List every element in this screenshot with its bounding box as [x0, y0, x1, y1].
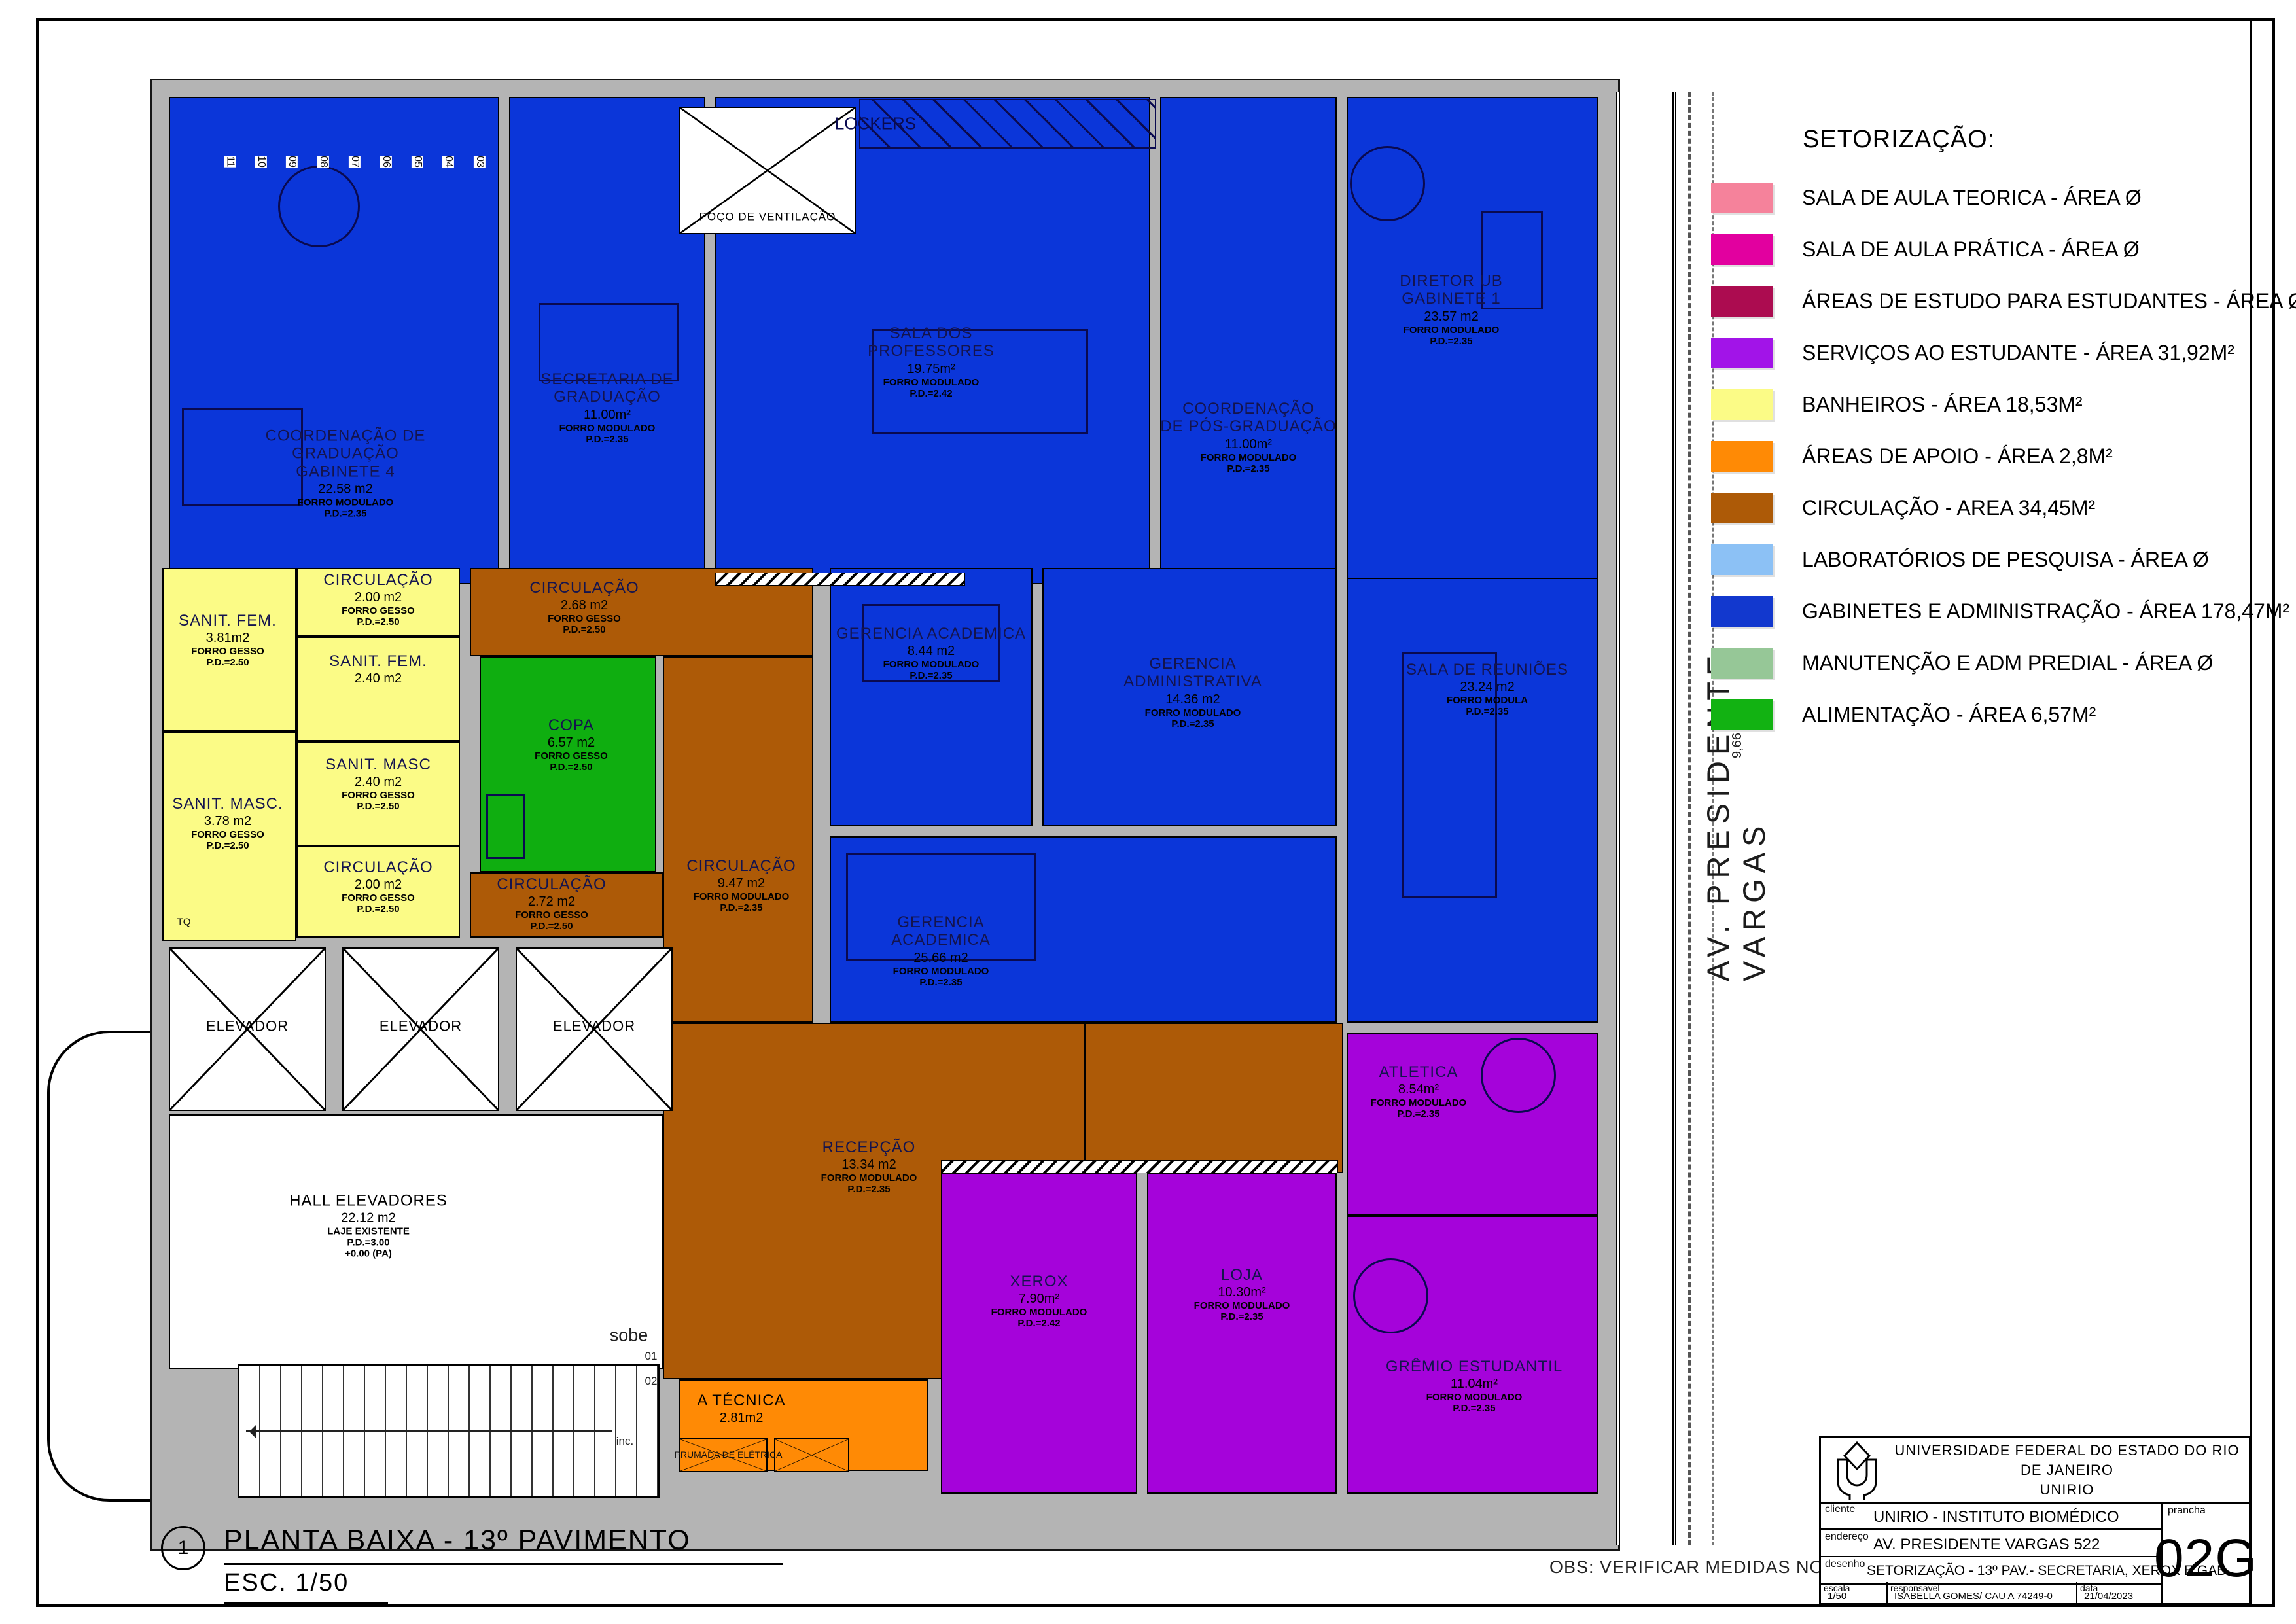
room-meta: P.D.=2.50 [535, 762, 608, 773]
room-name: CIRCULAÇÃO [323, 858, 433, 876]
legend-swatch [1711, 544, 1773, 575]
room-area: 22.12 m2 [289, 1211, 448, 1226]
room-name: PROFESSORES [868, 343, 995, 361]
room-label-elevador-2: ELEVADOR [380, 1017, 462, 1034]
room-atletica [1347, 1033, 1598, 1216]
room-meta: +0.00 (PA) [289, 1248, 448, 1260]
field-value: 21/04/2023 [2084, 1591, 2133, 1602]
room-label-sanitario-masculino-240: SANIT. MASC2.40 m2FORRO GESSOP.D.=2.50 [325, 756, 431, 812]
room-meta: P.D.=2.42 [991, 1318, 1087, 1329]
room-meta: FORRO GESSO [323, 892, 433, 904]
room-meta: FORRO MODULADO [1194, 1300, 1290, 1311]
room-label-a-tecnica: A TÉCNICA2.81m2 [697, 1392, 785, 1426]
legend-item-10: ALIMENTAÇÃO - ÁREA 6,57M² [1711, 689, 2271, 741]
room-area: 2.81m2 [697, 1411, 785, 1426]
legend-swatch [1711, 596, 1773, 627]
room-name: ELEVADOR [206, 1017, 289, 1034]
room-name: SANIT. FEM. [329, 652, 427, 670]
room-name: GABINETE 4 [266, 463, 426, 480]
room-name: GRADUAÇÃO [540, 389, 673, 406]
room-area: 11.00m² [1160, 437, 1336, 452]
room-area: 6.57 m2 [535, 735, 608, 750]
room-meta: FORRO MODULADO [686, 891, 796, 902]
room-label-sala-dos-professores: SALA DOSPROFESSORES19.75m²FORRO MODULADO… [868, 325, 995, 399]
room-label-circulacao-sanitarios-inferior: CIRCULAÇÃO2.00 m2FORRO GESSOP.D.=2.50 [323, 858, 433, 915]
room-name: SANIT. FEM. [179, 612, 277, 629]
title-block: UNIVERSIDADE FEDERAL DO ESTADO DO RIO DE… [1819, 1436, 2251, 1605]
room-area: 10.30m² [1194, 1285, 1290, 1300]
legend-swatch [1711, 389, 1773, 420]
room-area: 25.66 m2 [891, 951, 991, 966]
room-meta: P.D.=2.42 [868, 388, 995, 399]
unirio-logo-icon [1829, 1440, 1885, 1500]
room-meta: FORRO GESSO [172, 829, 283, 840]
room-meta: P.D.=2.35 [891, 977, 991, 988]
cross-icon [775, 1439, 848, 1471]
field-prancha: prancha 02G [2161, 1502, 2249, 1603]
stair-number: 04 [442, 156, 454, 168]
field-escala: escala 1/50 [1821, 1582, 1888, 1603]
room-area: 2.00 m2 [323, 590, 433, 605]
room-prumada-eletrica-2 [774, 1438, 849, 1472]
lockers-label: LOCKERS [835, 114, 916, 134]
room-label-elevador-3: ELEVADOR [553, 1017, 635, 1034]
room-area: 14.36 m2 [1123, 692, 1262, 707]
legend-item-2: ÁREAS DE ESTUDO PARA ESTUDANTES - ÁREA Ø [1711, 275, 2271, 327]
legend-item-6: CIRCULAÇÃO - AREA 34,45M² [1711, 482, 2271, 534]
furniture-mesa-secretaria [539, 303, 679, 381]
room-area: 23.57 m2 [1400, 309, 1503, 325]
legend-swatch [1711, 183, 1773, 213]
room-meta: LAJE EXISTENTE [289, 1226, 448, 1237]
field-cliente: cliente UNIRIO - INSTITUTO BIOMÉDICO [1821, 1502, 2163, 1530]
room-meta: P.D.=2.35 [686, 902, 796, 913]
room-label-gerencia-academica-2566: GERENCIAACADEMICA25.66 m2FORRO MODULADOP… [891, 913, 991, 988]
room-meta: P.D.=2.50 [323, 616, 433, 627]
legend-item-label: SALA DE AULA TEORICA - ÁREA Ø [1802, 186, 2142, 210]
legend-item-label: ÁREAS DE ESTUDO PARA ESTUDANTES - ÁREA Ø [1802, 289, 2296, 313]
street-centerline [1688, 92, 1691, 1545]
floor-plan: 111009080706050403 desce COORDENAÇÃO DEG… [150, 79, 1620, 1551]
room-name: COORDENAÇÃO DE [266, 427, 426, 444]
hall-curved-wall [47, 1031, 160, 1502]
field-data: data 21/04/2023 [2077, 1582, 2163, 1603]
field-value: AV. PRESIDENTE VARGAS 522 [1873, 1536, 2100, 1554]
legend-item-label: LABORATÓRIOS DE PESQUISA - ÁREA Ø [1802, 548, 2209, 572]
title-block-bottom-row: escala 1/50 responsavel ISABELLA GOMES/ … [1821, 1582, 2163, 1603]
room-name: SANIT. MASC [325, 756, 431, 773]
room-meta: FORRO MODULADO [821, 1173, 917, 1184]
room-name: POÇO DE VENTILAÇÃO [699, 210, 836, 222]
room-label-sanitario-feminino-381: SANIT. FEM.3.81m2FORRO GESSOP.D.=2.50 [179, 612, 277, 668]
room-meta: FORRO GESSO [179, 646, 277, 657]
room-label-diretor-ub-gabinete-1: DIRETOR UBGABINETE 123.57 m2FORRO MODULA… [1400, 272, 1503, 347]
room-meta: FORRO MODULADO [991, 1307, 1087, 1318]
room-name: ELEVADOR [380, 1017, 462, 1034]
room-meta: FORRO MODULADO [540, 423, 673, 434]
room-meta: FORRO GESSO [529, 613, 639, 624]
room-name: RECEPÇÃO [821, 1139, 917, 1156]
field-value: ISABELLA GOMES/ CAU A 74249-0 [1894, 1591, 2053, 1602]
hatched-wall [941, 1160, 1338, 1173]
title-block-rows: cliente UNIRIO - INSTITUTO BIOMÉDICO end… [1821, 1502, 2163, 1603]
prumada-label: PRUMADA DE ELÉTRICA [675, 1449, 783, 1460]
room-name: COPA [535, 716, 608, 734]
drawing-title: PLANTA BAIXA - 13º PAVIMENTO [224, 1525, 783, 1565]
room-name: CIRCULAÇÃO [686, 857, 796, 875]
room-label-circulacao-268: CIRCULAÇÃO2.68 m2FORRO GESSOP.D.=2.50 [529, 579, 639, 635]
legend-item-1: SALA DE AULA PRÁTICA - ÁREA Ø [1711, 224, 2271, 275]
legend-item-0: SALA DE AULA TEORICA - ÁREA Ø [1711, 172, 2271, 224]
room-meta: P.D.=2.50 [323, 904, 433, 915]
room-meta: P.D.=2.35 [836, 670, 1026, 681]
stair-center-line [246, 1430, 612, 1432]
legend-item-9: MANUTENÇÃO E ADM PREDIAL - ÁREA Ø [1711, 637, 2271, 689]
room-label-coordenacao-de-pos-graduacao: COORDENAÇÃODE PÓS-GRADUAÇÃO11.00m²FORRO … [1160, 400, 1336, 474]
room-meta: FORRO GESSO [497, 909, 606, 921]
hatched-wall [715, 573, 965, 586]
room-meta: FORRO MODULADO [1386, 1392, 1563, 1403]
room-label-hall-elevadores: HALL ELEVADORES22.12 m2LAJE EXISTENTEP.D… [289, 1192, 448, 1259]
stair-number: 07 [349, 156, 361, 168]
title-block-header: UNIVERSIDADE FEDERAL DO ESTADO DO RIO DE… [1821, 1438, 2249, 1504]
room-label-sanitario-feminino-240: SANIT. FEM.2.40 m2 [329, 652, 427, 686]
room-meta: FORRO MODULADO [1123, 707, 1262, 718]
room-name: A TÉCNICA [697, 1392, 785, 1409]
stair-number: 06 [380, 156, 392, 168]
room-meta: FORRO MODULADO [868, 377, 995, 388]
room-meta: FORRO MODULADO [266, 497, 426, 508]
room-area: 9.47 m2 [686, 876, 796, 891]
room-meta: P.D.=2.35 [1371, 1108, 1467, 1120]
stair-number: 08 [317, 156, 329, 168]
room-label-secretaria-de-graduacao: SECRETARIA DEGRADUAÇÃO11.00m²FORRO MODUL… [540, 370, 673, 445]
sheet-number: 02G [2154, 1528, 2257, 1589]
field-desenho: desenho SETORIZAÇÃO - 13º PAV.- SECRETAR… [1821, 1557, 2163, 1585]
room-meta: P.D.=2.35 [1160, 463, 1336, 474]
degrau-02: 02 [645, 1375, 658, 1388]
drawing-scale: ESC. 1/50 [224, 1569, 388, 1604]
furniture-mesa-redonda-diretor [1350, 146, 1425, 221]
legend-item-label: MANUTENÇÃO E ADM PREDIAL - ÁREA Ø [1802, 651, 2213, 675]
legend-swatch [1711, 286, 1773, 317]
room-name: CIRCULAÇÃO [497, 875, 606, 893]
room-area: 8.54m² [1371, 1082, 1467, 1097]
room-meta: FORRO MODULA [1406, 695, 1568, 706]
legend-swatch [1711, 493, 1773, 523]
furniture-mesa-redonda-gremio [1353, 1258, 1428, 1333]
field-value: UNIRIO - INSTITUTO BIOMÉDICO [1873, 1508, 2119, 1527]
room-name: ATLETICA [1371, 1063, 1467, 1081]
room-area: 2.00 m2 [323, 877, 433, 892]
room-area: 11.04m² [1386, 1377, 1563, 1392]
room-label-gremio-estudantil: GRÊMIO ESTUDANTIL11.04m²FORRO MODULADOP.… [1386, 1358, 1563, 1414]
legend-swatch [1711, 699, 1773, 730]
field-endereco: endereço AV. PRESIDENTE VARGAS 522 [1821, 1530, 2163, 1557]
room-meta: P.D.=2.35 [1400, 336, 1503, 347]
room-label-gerencia-administrativa: GERENCIAADMINISTRATIVA14.36 m2FORRO MODU… [1123, 655, 1262, 730]
room-meta: P.D.=2.35 [821, 1184, 917, 1195]
room-meta: P.D.=2.50 [172, 840, 283, 851]
tq-label: TQ [177, 917, 191, 928]
room-meta: FORRO MODULADO [1160, 452, 1336, 463]
room-area: 3.81m2 [179, 631, 277, 646]
room-name: CIRCULAÇÃO [323, 571, 433, 589]
legend-item-8: GABINETES E ADMINISTRAÇÃO - ÁREA 178,47M… [1711, 586, 2271, 637]
room-meta: FORRO GESSO [325, 790, 431, 801]
legend-title: SETORIZAÇÃO: [1803, 126, 2271, 154]
view-number-bubble: 1 [161, 1526, 205, 1570]
legend-item-label: SALA DE AULA PRÁTICA - ÁREA Ø [1802, 238, 2140, 262]
legend-item-label: GABINETES E ADMINISTRAÇÃO - ÁREA 178,47M… [1802, 599, 2289, 624]
room-area: 22.58 m2 [266, 482, 426, 497]
room-label-sala-de-reunioes: SALA DE REUNIÕES23.24 m2FORRO MODULAP.D.… [1406, 661, 1568, 717]
room-label-circulacao-sanitarios-superior: CIRCULAÇÃO2.00 m2FORRO GESSOP.D.=2.50 [323, 571, 433, 627]
stair-number: 05 [411, 156, 423, 168]
room-area: 11.00m² [540, 408, 673, 423]
room-meta: P.D.=2.50 [529, 624, 639, 635]
room-area: 7.90m² [991, 1292, 1087, 1307]
stair-number: 03 [474, 156, 486, 168]
room-area: 2.72 m2 [497, 894, 606, 909]
room-meta: P.D.=2.35 [1194, 1311, 1290, 1322]
room-label-sanitario-masculino-378: SANIT. MASC.3.78 m2FORRO GESSOP.D.=2.50 [172, 795, 283, 851]
legend-swatch [1711, 441, 1773, 472]
room-label-xerox: XEROX7.90m²FORRO MODULADOP.D.=2.42 [991, 1273, 1087, 1329]
drawing-sheet: 111009080706050403 desce COORDENAÇÃO DEG… [0, 0, 2296, 1624]
room-name: ELEVADOR [553, 1017, 635, 1034]
room-meta: P.D.=2.35 [266, 508, 426, 519]
room-name: GERENCIA ACADEMICA [836, 625, 1026, 643]
legend-item-4: BANHEIROS - ÁREA 18,53M² [1711, 379, 2271, 431]
furniture-mesa-redonda-atletica [1481, 1038, 1556, 1113]
furniture-mesa-redonda-gabinete-4 [278, 166, 360, 247]
room-meta: FORRO MODULADO [891, 966, 991, 977]
stair-step-numbers: 111009080706050403 [224, 156, 486, 168]
room-meta: FORRO MODULADO [836, 659, 1026, 670]
legend-swatch [1711, 648, 1773, 679]
legend-item-3: SERVIÇOS AO ESTUDANTE - ÁREA 31,92M² [1711, 327, 2271, 379]
room-meta: P.D.=2.35 [1406, 706, 1568, 717]
room-meta: P.D.=2.50 [497, 921, 606, 932]
room-name: SALA DOS [868, 325, 995, 342]
balcony-strip [1616, 92, 1676, 1545]
room-area: 2.40 m2 [329, 671, 427, 686]
room-meta: P.D.=2.50 [325, 801, 431, 812]
room-area: 2.68 m2 [529, 598, 639, 613]
room-circulacao-947 [663, 656, 813, 1023]
room-label-atletica: ATLETICA8.54m²FORRO MODULADOP.D.=2.35 [1371, 1063, 1467, 1120]
room-circulacao-lojas [1085, 1023, 1343, 1173]
room-name: COORDENAÇÃO [1160, 400, 1336, 417]
inc-label: inc. [616, 1435, 633, 1448]
room-meta: P.D.=3.00 [289, 1237, 448, 1248]
legend-swatch [1711, 338, 1773, 368]
room-name: SANIT. MASC. [172, 795, 283, 813]
room-name: XEROX [991, 1273, 1087, 1290]
room-area: 3.78 m2 [172, 814, 283, 829]
legend-item-label: CIRCULAÇÃO - AREA 34,45M² [1802, 496, 2095, 520]
room-meta: P.D.=2.50 [179, 657, 277, 668]
legend-item-5: ÁREAS DE APOIO - ÁREA 2,8M² [1711, 431, 2271, 482]
room-label-recepcao: RECEPÇÃO13.34 m2FORRO MODULADOP.D.=2.35 [821, 1139, 917, 1195]
room-name: GRÊMIO ESTUDANTIL [1386, 1358, 1563, 1375]
field-value: 1/50 [1828, 1591, 1846, 1602]
legend-swatch [1711, 234, 1773, 265]
room-name: GERENCIA [1123, 655, 1262, 673]
room-meta: FORRO MODULADO [1400, 325, 1503, 336]
room-coordenacao-de-pos-graduacao [1160, 97, 1337, 584]
room-meta: P.D.=2.35 [540, 434, 673, 445]
room-label-coordenacao-graduacao-gabinete-4: COORDENAÇÃO DEGRADUAÇÃOGABINETE 422.58 m… [266, 427, 426, 519]
room-label-gerencia-academica-844: GERENCIA ACADEMICA8.44 m2FORRO MODULADOP… [836, 625, 1026, 681]
room-meta: P.D.=2.35 [1386, 1403, 1563, 1414]
room-name: DE PÓS-GRADUAÇÃO [1160, 418, 1336, 436]
room-name: ADMINISTRATIVA [1123, 673, 1262, 691]
sobe-label: sobe [610, 1326, 648, 1346]
room-name: GABINETE 1 [1400, 291, 1503, 308]
room-name: SALA DE REUNIÕES [1406, 661, 1568, 679]
legend: SETORIZAÇÃO: SALA DE AULA TEORICA - ÁREA… [1711, 126, 2271, 741]
university-line1: UNIVERSIDADE FEDERAL DO ESTADO DO RIO DE… [1885, 1441, 2249, 1479]
field-label: desenho [1825, 1559, 1865, 1570]
room-meta: FORRO GESSO [535, 750, 608, 762]
room-label-elevador-1: ELEVADOR [206, 1017, 289, 1034]
room-name: HALL ELEVADORES [289, 1192, 448, 1209]
stair-number: 11 [224, 156, 236, 168]
room-name: GRADUAÇÃO [266, 445, 426, 463]
room-area: 13.34 m2 [821, 1157, 917, 1173]
legend-item-7: LABORATÓRIOS DE PESQUISA - ÁREA Ø [1711, 534, 2271, 586]
room-area: 8.44 m2 [836, 644, 1026, 659]
legend-item-label: ALIMENTAÇÃO - ÁREA 6,57M² [1802, 703, 2096, 727]
staircase [238, 1364, 660, 1498]
room-area: 19.75m² [868, 362, 995, 377]
room-name: LOJA [1194, 1266, 1290, 1284]
room-label-poco-de-ventilacao: POÇO DE VENTILAÇÃO [699, 210, 836, 222]
legend-items: SALA DE AULA TEORICA - ÁREA ØSALA DE AUL… [1711, 172, 2271, 741]
room-meta: FORRO GESSO [323, 605, 433, 616]
room-label-circulacao-947: CIRCULAÇÃO9.47 m2FORRO MODULADOP.D.=2.35 [686, 857, 796, 913]
room-name: CIRCULAÇÃO [529, 579, 639, 597]
room-name: GERENCIA [891, 913, 991, 931]
room-label-loja: LOJA10.30m²FORRO MODULADOP.D.=2.35 [1194, 1266, 1290, 1322]
room-meta: FORRO MODULADO [1371, 1097, 1467, 1108]
room-name: DIRETOR UB [1400, 272, 1503, 290]
field-label: prancha [2168, 1505, 2206, 1517]
legend-item-label: SERVIÇOS AO ESTUDANTE - ÁREA 31,92M² [1802, 341, 2234, 365]
university-line2: UNIRIO [1885, 1480, 2249, 1500]
room-label-copa: COPA6.57 m2FORRO GESSOP.D.=2.50 [535, 716, 608, 773]
university-name: UNIVERSIDADE FEDERAL DO ESTADO DO RIO DE… [1885, 1441, 2249, 1499]
legend-item-label: ÁREAS DE APOIO - ÁREA 2,8M² [1802, 444, 2113, 468]
legend-item-label: BANHEIROS - ÁREA 18,53M² [1802, 393, 2083, 417]
room-area: 23.24 m2 [1406, 680, 1568, 695]
stair-number: 10 [255, 156, 267, 168]
field-responsavel: responsavel ISABELLA GOMES/ CAU A 74249-… [1888, 1582, 2077, 1603]
room-name: SECRETARIA DE [540, 370, 673, 388]
stair-number: 09 [286, 156, 298, 168]
stair-direction-arrow [242, 1424, 256, 1439]
field-label: cliente [1825, 1504, 1855, 1515]
field-label: endereço [1825, 1531, 1869, 1543]
room-gremio-estudantil [1347, 1216, 1598, 1494]
room-xerox [941, 1173, 1137, 1494]
furniture-pia-copa [486, 794, 525, 859]
room-name: ACADEMICA [891, 932, 991, 949]
room-meta: P.D.=2.35 [1123, 718, 1262, 730]
room-label-circulacao-272: CIRCULAÇÃO2.72 m2FORRO GESSOP.D.=2.50 [497, 875, 606, 932]
room-area: 2.40 m2 [325, 775, 431, 790]
room-loja [1147, 1173, 1337, 1494]
degrau-01: 01 [645, 1350, 658, 1363]
